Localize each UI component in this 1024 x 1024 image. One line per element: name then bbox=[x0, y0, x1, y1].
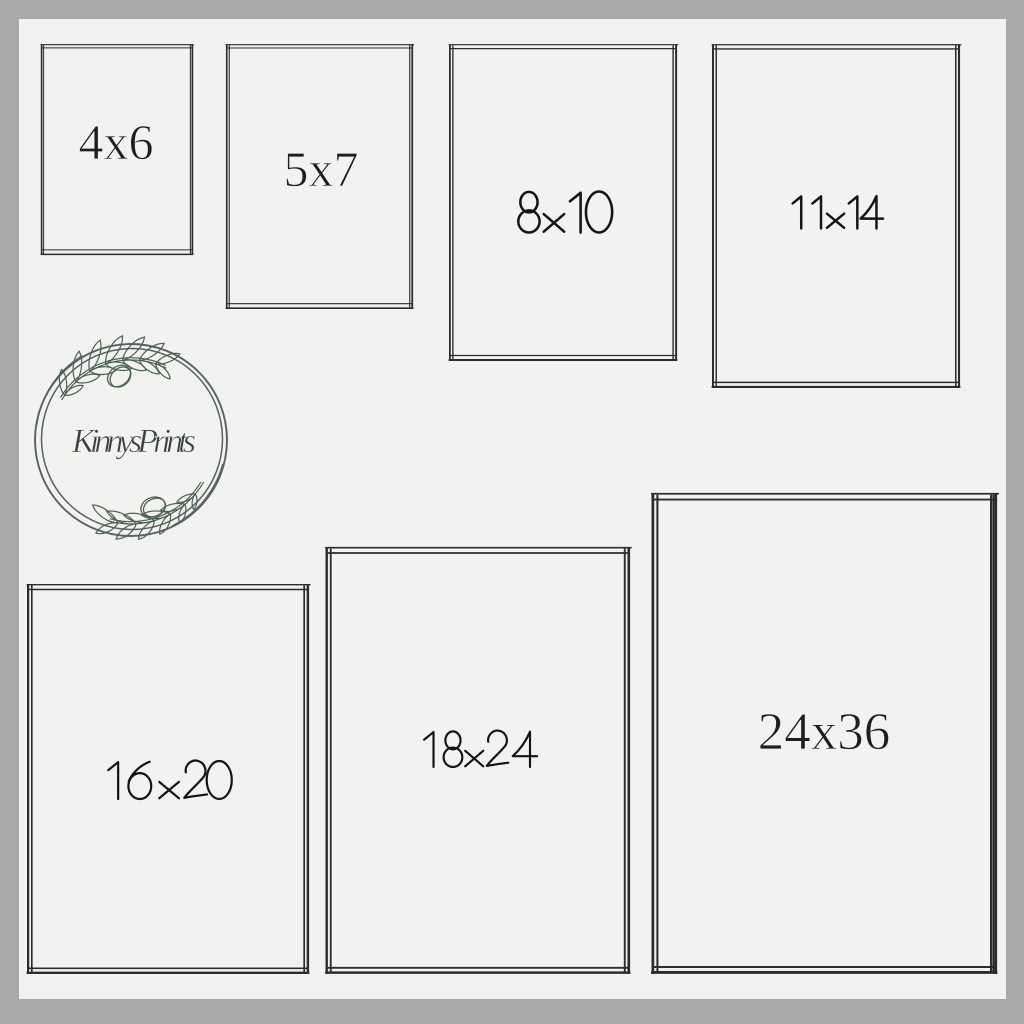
svg-text:5x7: 5x7 bbox=[284, 141, 359, 197]
svg-text:24x36: 24x36 bbox=[758, 703, 891, 761]
svg-text:4x6: 4x6 bbox=[79, 114, 154, 170]
svg-text:KinnysPrints: KinnysPrints bbox=[71, 423, 196, 460]
